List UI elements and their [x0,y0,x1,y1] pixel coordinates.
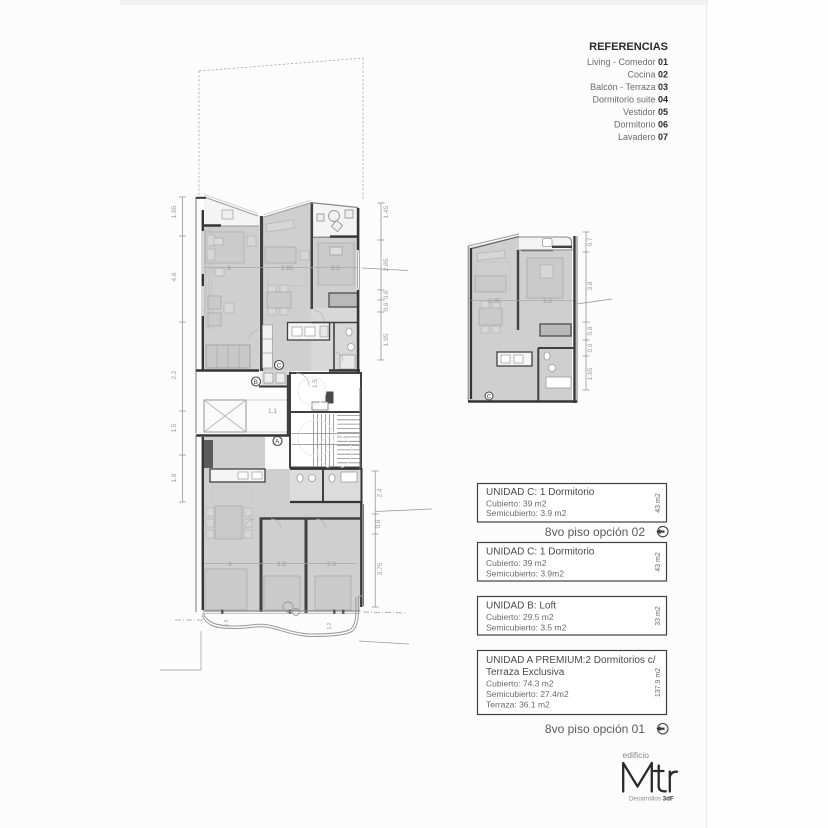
svg-text:2.5: 2.5 [331,265,340,272]
svg-text:REFERENCIAS: REFERENCIAS [589,41,668,53]
svg-text:3: 3 [228,561,232,568]
svg-text:2.4: 2.4 [377,488,384,497]
svg-text:Balcón - Terraza 03: Balcón - Terraza 03 [590,82,668,92]
svg-text:3: 3 [227,265,231,272]
svg-text:Dormitorio 06: Dormitorio 06 [614,120,668,130]
svg-text:Cubierto: 29.5 m2: Cubierto: 29.5 m2 [486,612,554,622]
svg-text:UNIDAD A PREMIUM:2 Dormitorios: UNIDAD A PREMIUM:2 Dormitorios c/ [486,655,656,666]
svg-text:2.2: 2.2 [171,370,178,379]
svg-text:43 m2: 43 m2 [655,493,662,513]
svg-text:C: C [277,363,282,370]
svg-text:Desarrollos 3dF: Desarrollos 3dF [629,796,674,803]
svg-text:0.6: 0.6 [587,343,594,352]
svg-text:Cubierto: 39 m2: Cubierto: 39 m2 [486,558,547,568]
svg-text:0.8: 0.8 [587,326,594,335]
svg-text:2.6: 2.6 [543,298,552,305]
svg-text:Dormitorio suite 04: Dormitorio suite 04 [592,95,668,105]
svg-text:2.85: 2.85 [488,298,501,305]
svg-text:1.8: 1.8 [171,473,178,482]
svg-text:Semicubierto: 3.9 m2: Semicubierto: 3.9 m2 [486,508,567,518]
svg-text:0.6: 0.6 [383,302,390,311]
svg-text:0.7: 0.7 [587,237,594,246]
svg-text:A: A [275,439,280,446]
svg-text:3.75: 3.75 [377,562,384,575]
svg-text:Cubierto: 74.3 m2: Cubierto: 74.3 m2 [486,679,554,689]
svg-text:2.2: 2.2 [277,561,286,568]
svg-text:33 m2: 33 m2 [655,606,662,626]
svg-text:Cocina 02: Cocina 02 [627,70,668,80]
svg-text:Vestidor 05: Vestidor 05 [623,107,668,117]
svg-text:UNIDAD B: Loft: UNIDAD B: Loft [486,601,556,612]
svg-text:3.8: 3.8 [587,281,594,290]
svg-text:1.5: 1.5 [171,423,178,432]
svg-text:2.6: 2.6 [327,561,336,568]
svg-text:Terraza: 36.1 m2: Terraza: 36.1 m2 [486,700,550,710]
svg-text:Semicubierto: 3.5 m2: Semicubierto: 3.5 m2 [486,623,567,633]
svg-text:Terraza Exclusiva: Terraza Exclusiva [486,667,565,678]
svg-text:4.6: 4.6 [171,272,178,281]
svg-text:1.5: 1.5 [312,379,319,388]
svg-text:0.6: 0.6 [375,519,382,528]
svg-text:1.95: 1.95 [383,333,390,346]
svg-text:137.9 m2: 137.9 m2 [655,668,662,697]
svg-text:1.5: 1.5 [224,619,230,626]
svg-text:Living - Comedor 01: Living - Comedor 01 [587,57,668,67]
svg-text:B: B [254,379,258,386]
svg-text:0.6: 0.6 [383,290,390,299]
svg-text:8vo piso opción 02: 8vo piso opción 02 [545,525,645,539]
svg-text:1.1: 1.1 [268,408,277,415]
svg-text:UNIDAD C: 1 Dormitorio: UNIDAD C: 1 Dormitorio [486,487,595,498]
svg-text:1.95: 1.95 [587,367,594,380]
svg-text:2.85: 2.85 [281,265,294,272]
svg-text:Cubierto: 39 m2: Cubierto: 39 m2 [486,499,547,509]
svg-text:8vo piso opción 01: 8vo piso opción 01 [545,722,645,736]
svg-text:1.2: 1.2 [327,622,333,629]
svg-text:Semicubierto: 3.9m2: Semicubierto: 3.9m2 [486,569,564,579]
svg-text:Semicubierto: 27.4m2: Semicubierto: 27.4m2 [486,689,569,699]
svg-text:1.45: 1.45 [383,205,390,218]
svg-text:C: C [487,394,492,400]
svg-text:1.65: 1.65 [171,205,178,218]
svg-text:Lavadero 07: Lavadero 07 [618,132,668,142]
svg-text:UNIDAD C: 1 Dormitorio: UNIDAD C: 1 Dormitorio [486,547,595,558]
svg-text:edificio: edificio [623,750,650,760]
svg-text:43 m2: 43 m2 [655,552,662,572]
